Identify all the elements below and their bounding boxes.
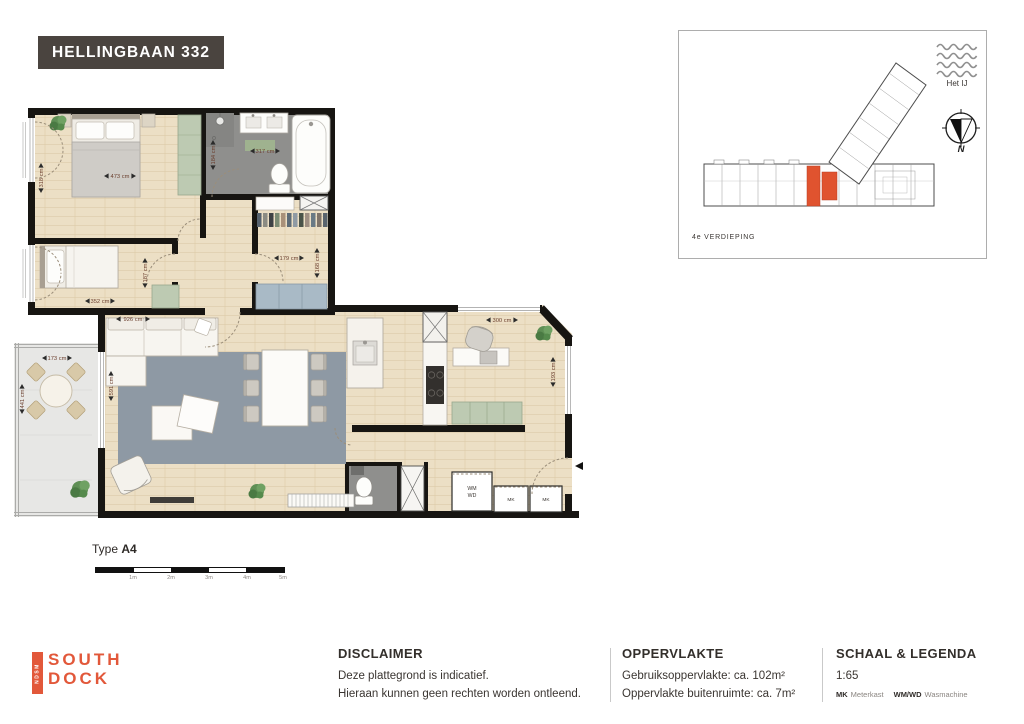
site-plan-box: Het IJ N 4e VERDIEPING (678, 30, 987, 259)
oppervlakte-section: OPPERVLAKTE Gebruiksoppervlakte: ca. 102… (622, 646, 814, 706)
kitchen-island (347, 318, 383, 388)
svg-text:193 cm: 193 cm (551, 362, 557, 381)
floor-level-label: 4e VERDIEPING (692, 234, 755, 241)
scale-segment (209, 568, 247, 572)
scale-bar-track (95, 567, 285, 573)
svg-text:187 cm: 187 cm (143, 263, 149, 282)
scale-label-2m: 2m (163, 575, 179, 581)
schaal-legenda-section: SCHAAL & LEGENDA 1:65 MKMeterkastWM/WDWa… (836, 646, 1006, 706)
legend-wmwd-abbr: WM/WD (894, 690, 922, 699)
floorplan-page: WM WD MK MK (0, 0, 1024, 724)
wd-label: WD (468, 493, 477, 499)
disclaimer-heading: DISCLAIMER (338, 646, 600, 661)
master-wardrobe (178, 115, 201, 195)
svg-text:184 cm: 184 cm (211, 145, 217, 164)
water-icon (937, 45, 977, 77)
tv-console (150, 497, 194, 503)
type-prefix: Type (92, 542, 118, 556)
radiator (288, 494, 354, 507)
svg-text:352 cm: 352 cm (90, 299, 109, 305)
type-label: Type A4 (92, 542, 137, 556)
wm-wd-closet: WM WD (452, 472, 492, 511)
svg-text:473 cm: 473 cm (110, 174, 129, 180)
svg-text:300 cm: 300 cm (492, 318, 511, 324)
svg-text:318 cm: 318 cm (39, 168, 45, 187)
compass-north-label: N (949, 144, 973, 155)
legend-mk-label: Meterkast (851, 690, 884, 699)
meterkast-2: MK (530, 486, 562, 512)
legend-mk-abbr: MK (836, 690, 848, 699)
single-bed (40, 246, 118, 288)
dining-set (244, 350, 327, 426)
disclaimer-line-2: Hieraan kunnen geen rechten worden ontle… (338, 688, 600, 700)
svg-text:926 cm: 926 cm (123, 317, 142, 323)
oppervlakte-row-1: Gebruiksoppervlakte: ca. 102m² (622, 670, 814, 682)
page-title: HELLINGBAAN 332 (38, 36, 224, 69)
buitenruimte-label: Oppervlakte buitenruimte: (622, 688, 754, 700)
closet-top-cabinet (256, 196, 328, 210)
buitenruimte-value: ca. 7m² (757, 688, 795, 700)
compass-icon (942, 109, 980, 147)
legend-line: MKMeterkastWM/WDWasmachine (836, 690, 1006, 699)
scale-bar: 1m 2m 3m 4m 5m (95, 567, 285, 585)
scale-label-5m: 5m (275, 575, 291, 581)
water-label: Het IJ (933, 79, 981, 88)
scale-segment (246, 568, 284, 572)
scale-segment (171, 568, 209, 572)
disclaimer-section: DISCLAIMER Deze plattegrond is indicatie… (338, 646, 600, 706)
svg-text:179 cm: 179 cm (279, 256, 298, 262)
logo-dock: DOCK (48, 669, 110, 689)
svg-text:441 cm: 441 cm (20, 389, 26, 408)
gebruiksoppervlakte-value: ca. 102m² (734, 670, 785, 682)
scale-label-1m: 1m (125, 575, 141, 581)
scale-label-3m: 3m (201, 575, 217, 581)
svg-text:317 cm: 317 cm (255, 149, 274, 155)
legend-wmwd-label: Wasmachine (925, 690, 968, 699)
scale-label-4m: 4m (239, 575, 255, 581)
entrance-arrow-icon (575, 462, 583, 470)
scale-value: 1:65 (836, 670, 1006, 682)
site-plan-drawing (679, 31, 986, 258)
shaft (401, 466, 424, 511)
mk2-label: MK (542, 497, 550, 503)
type-value: A4 (121, 542, 136, 556)
highlighted-unit (807, 166, 837, 206)
ndsm-logo-box: NDSM (32, 652, 43, 694)
svg-text:168 cm: 168 cm (315, 253, 321, 272)
gebruiksoppervlakte-label: Gebruiksoppervlakte: (622, 670, 731, 682)
scale-segment (96, 568, 134, 572)
closet-cabinets (256, 284, 327, 309)
wm-label: WM (467, 486, 476, 492)
footer-divider (822, 648, 823, 702)
ndsm-logo-text: NDSM (32, 652, 43, 694)
disclaimer-line-1: Deze plattegrond is indicatief. (338, 670, 600, 682)
kitchen-green-cabinets (452, 402, 522, 424)
scale-segment (134, 568, 172, 572)
meterkast-1: MK (494, 486, 528, 512)
svg-text:173 cm: 173 cm (47, 356, 66, 362)
footer-divider (610, 648, 611, 702)
schaal-heading: SCHAAL & LEGENDA (836, 646, 1006, 661)
kitchen-tall-units (423, 312, 447, 425)
oppervlakte-row-2: Oppervlakte buitenruimte: ca. 7m² (622, 688, 814, 700)
bedroom2-cabinet (152, 285, 179, 308)
mk1-label: MK (507, 497, 515, 503)
oppervlakte-heading: OPPERVLAKTE (622, 646, 814, 661)
svg-text:591 cm: 591 cm (109, 376, 115, 395)
logo-south: SOUTH (48, 650, 123, 670)
